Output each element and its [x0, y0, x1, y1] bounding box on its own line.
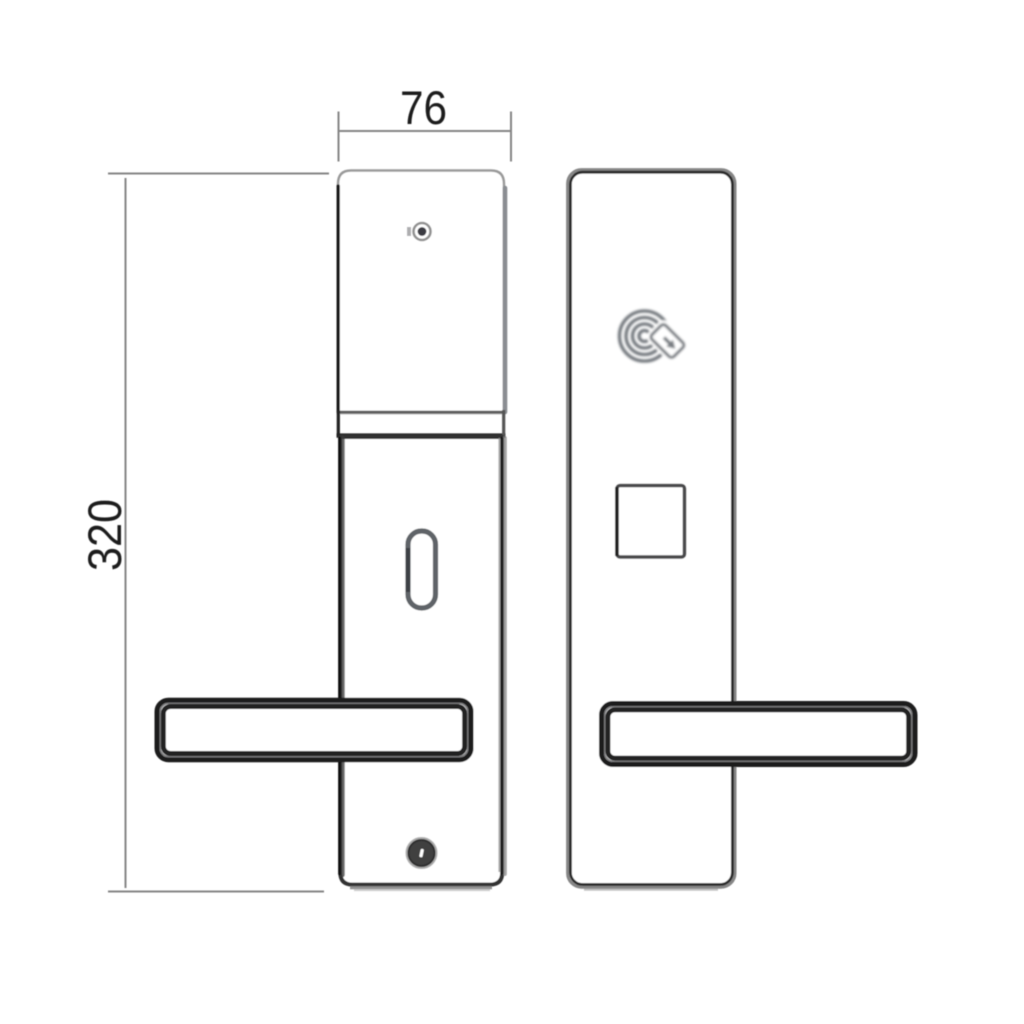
- svg-text:320: 320: [78, 499, 131, 571]
- svg-text:76: 76: [400, 83, 447, 135]
